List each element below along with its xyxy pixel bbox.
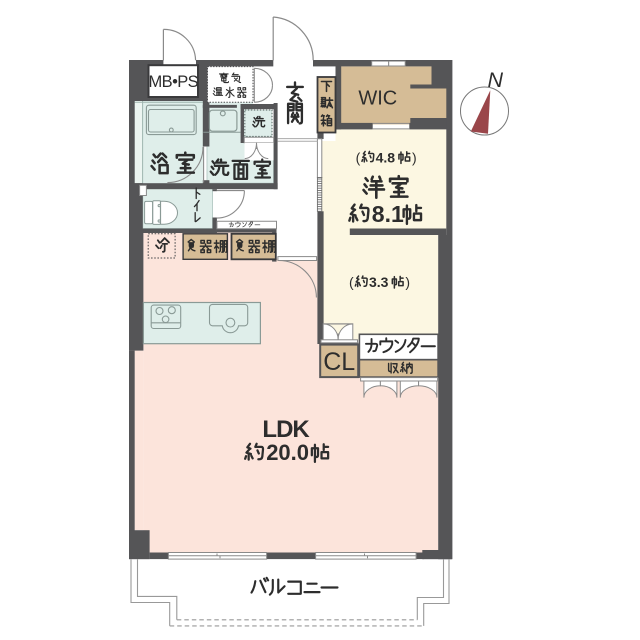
svg-text:8.1: 8.1 — [372, 201, 404, 227]
svg-text:3.3: 3.3 — [369, 274, 389, 290]
svg-text:CL: CL — [323, 348, 355, 376]
svg-text:LDK: LDK — [262, 416, 310, 443]
svg-text:4.8: 4.8 — [376, 149, 396, 165]
svg-text:N: N — [488, 68, 504, 92]
svg-text:20.0: 20.0 — [266, 440, 309, 465]
svg-text:(: ( — [356, 149, 361, 165]
svg-text:): ) — [405, 274, 410, 290]
svg-text:MB•PS: MB•PS — [149, 73, 199, 91]
svg-text:(: ( — [349, 274, 354, 290]
svg-text:WIC: WIC — [358, 88, 397, 110]
svg-text:): ) — [412, 149, 417, 165]
